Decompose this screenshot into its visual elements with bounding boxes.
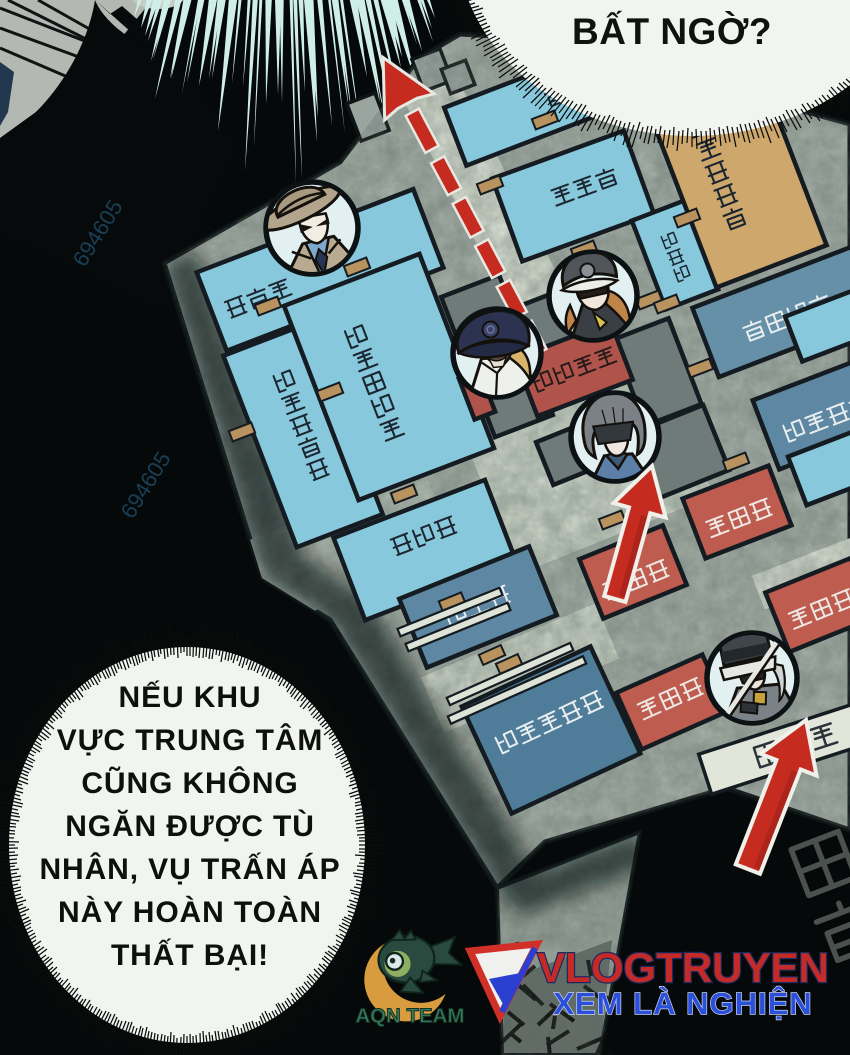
- svg-text:XEM LÀ NGHIỆN: XEM LÀ NGHIỆN: [553, 985, 812, 1021]
- svg-text:BẤT NGỜ?: BẤT NGỜ?: [572, 10, 772, 52]
- svg-text:NGĂN ĐƯỢC TÙ: NGĂN ĐƯỢC TÙ: [65, 809, 315, 843]
- svg-text:VỰC TRUNG TÂM: VỰC TRUNG TÂM: [57, 723, 324, 757]
- svg-text:NẾU KHU: NẾU KHU: [119, 680, 262, 714]
- svg-text:NHÂN, VỤ TRẤN ÁP: NHÂN, VỤ TRẤN ÁP: [39, 852, 340, 886]
- svg-text:CŨNG KHÔNG: CŨNG KHÔNG: [81, 766, 298, 800]
- svg-text:AQN TEAM: AQN TEAM: [355, 1004, 464, 1027]
- svg-text:NÀY HOÀN TOÀN: NÀY HOÀN TOÀN: [58, 895, 322, 929]
- svg-text:VLOGTRUYEN: VLOGTRUYEN: [537, 944, 829, 991]
- svg-text:THẤT BẠI!: THẤT BẠI!: [111, 938, 269, 972]
